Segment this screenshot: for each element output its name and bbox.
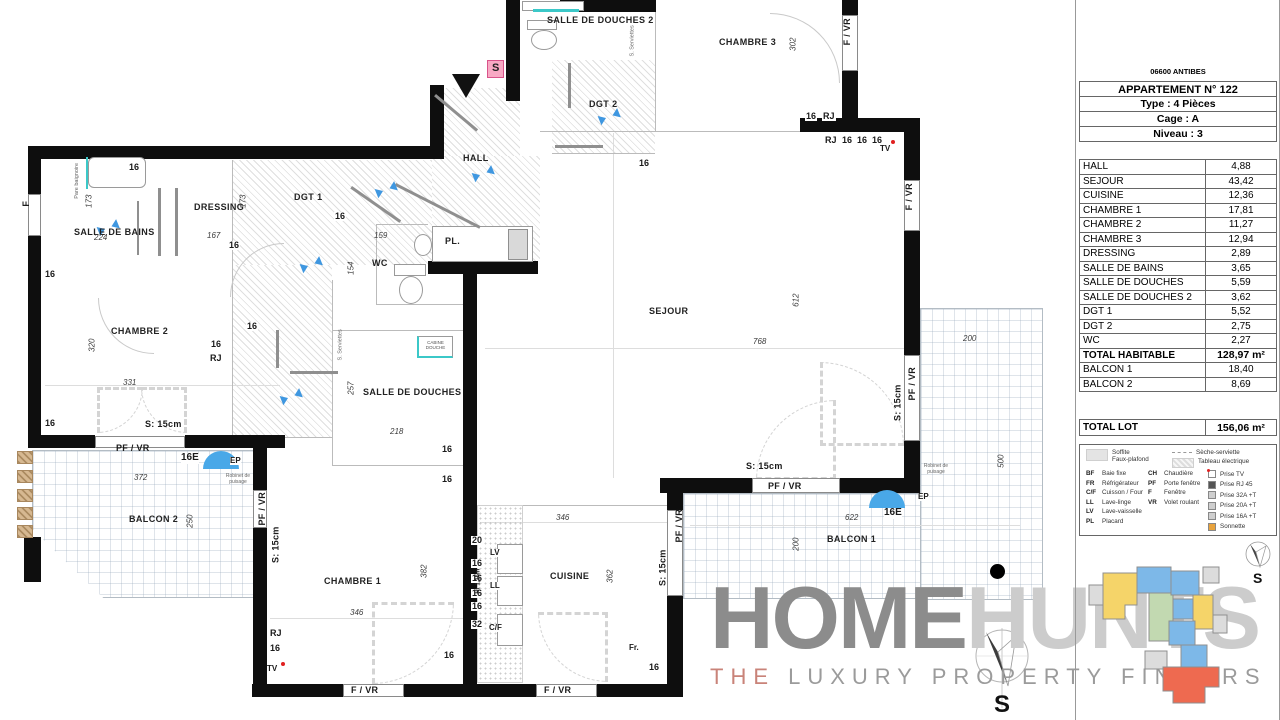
sliding-door <box>276 330 279 368</box>
window-label: PF / VR <box>675 509 684 543</box>
fixture <box>394 264 426 276</box>
outlet-marker: 16 <box>471 559 483 568</box>
annotation: S. Serviettes <box>631 25 637 56</box>
dimension: 331 <box>123 379 136 387</box>
dimension: 218 <box>390 428 403 436</box>
partition-line <box>655 0 656 131</box>
fixture <box>399 276 423 304</box>
outlet-marker: LV <box>490 549 500 557</box>
wall <box>28 236 41 448</box>
room-label: DRESSING <box>194 203 244 212</box>
outlet-marker: EP <box>918 493 929 501</box>
dimension-line <box>45 385 280 386</box>
dimension: 346 <box>350 609 363 617</box>
window-label: F / VR <box>544 686 571 695</box>
dimension: 200 <box>792 538 800 551</box>
window-label: S: 15cm <box>272 526 281 563</box>
table-row: CHAMBRE 211,27 <box>1079 217 1277 233</box>
outlet-marker: 16 <box>805 112 817 121</box>
sliding-door <box>290 371 338 374</box>
annotation: Pare baignoire <box>75 163 81 199</box>
door-swing <box>820 362 904 446</box>
outlet-marker: 16 <box>228 241 240 250</box>
table-row: DRESSING2,89 <box>1079 246 1277 262</box>
wall <box>904 132 920 180</box>
wall <box>660 478 752 493</box>
sonnette-badge: S <box>487 60 504 78</box>
outlet-marker: 16 <box>269 644 281 653</box>
sanitary-accent <box>533 9 579 12</box>
room-label: DGT 1 <box>294 193 323 202</box>
wall <box>842 71 858 120</box>
table-row: SALLE DE BAINS3,65 <box>1079 261 1277 277</box>
prise-tv-icon <box>1208 470 1216 478</box>
legend: SoffiteFaux-plafond Sèche-serviette Tabl… <box>1079 444 1277 536</box>
wall <box>28 146 41 194</box>
dimension: 173 <box>85 195 93 208</box>
dimension: 320 <box>88 339 96 352</box>
wall <box>428 261 538 274</box>
total-lot-row: TOTAL LOT156,06 m² <box>1079 419 1277 436</box>
dimension: 167 <box>207 232 220 240</box>
outlet-marker: 16E <box>884 508 902 519</box>
wall <box>28 435 95 448</box>
prise-rj45-icon <box>1208 481 1216 489</box>
key-plan-south-label: S <box>1253 570 1262 586</box>
wall <box>185 435 285 448</box>
table-row: DGT 15,52 <box>1079 304 1277 320</box>
sliding-door <box>158 188 161 256</box>
outlet-marker: 16 <box>441 445 453 454</box>
city-label: 06600 ANTIBES <box>1079 67 1277 76</box>
table-row: CHAMBRE 312,94 <box>1079 232 1277 248</box>
prise-20a-icon <box>1208 502 1216 510</box>
outlet-marker: 16 <box>334 212 346 221</box>
outlet-marker: EP <box>230 457 241 465</box>
entrance-arrow-icon <box>452 74 480 98</box>
table-row: DGT 22,75 <box>1079 319 1277 335</box>
areas-table: HALL4,88 SEJOUR43,42 CUISINE12,36 CHAMBR… <box>1079 160 1277 392</box>
outlet-marker: TV <box>267 665 277 673</box>
wall <box>800 118 920 132</box>
room-label: SALLE DE DOUCHES <box>363 388 461 397</box>
door-swing <box>770 13 840 83</box>
wall <box>252 684 343 697</box>
window-label: PF / VR <box>768 482 802 491</box>
sliding-door <box>568 63 571 108</box>
fixture <box>497 544 523 574</box>
outlet-marker: RJ <box>269 629 283 638</box>
window-label: PF / VR <box>116 444 150 453</box>
door-swing <box>538 612 608 682</box>
annotation: Robinet de puisage <box>918 464 954 475</box>
dimension: 250 <box>186 515 194 528</box>
sonnette-icon <box>1208 523 1216 531</box>
legend-col-1: BFBaie fixe FRRéfrigérateur C/FCuisson /… <box>1086 470 1148 533</box>
sliding-door <box>555 145 603 148</box>
total-habitable-row: TOTAL HABITABLE128,97 m² <box>1079 348 1277 364</box>
dimension-line <box>485 348 905 349</box>
wall <box>253 528 267 686</box>
table-row: BALCON 28,69 <box>1079 377 1277 393</box>
tableau-electrique <box>508 229 528 260</box>
window-label: S: 15cm <box>746 462 783 471</box>
dimension-line <box>613 133 614 478</box>
room-label: CUISINE <box>550 572 589 581</box>
dimension: 622 <box>845 514 858 522</box>
outlet-marker: C/F <box>489 624 502 632</box>
outlet-marker: 16 <box>841 136 853 145</box>
outlet-marker: Fr. <box>629 644 639 652</box>
fixture <box>414 234 432 256</box>
wall <box>667 596 683 697</box>
window-label: F / VR <box>905 183 914 210</box>
outlet-marker: 16 <box>443 651 455 660</box>
outlet-marker: 16 <box>246 322 258 331</box>
balcony-step <box>17 451 33 464</box>
dimension: 362 <box>606 570 614 583</box>
shower-cabin-label: CABINE DOUCHE <box>417 336 453 358</box>
room-label: PL. <box>445 237 460 246</box>
sanitary-accent <box>86 157 88 189</box>
seche-serviette-swatch <box>1172 452 1192 454</box>
dimension-line <box>690 525 1020 526</box>
outlet-marker: RJ <box>824 136 838 145</box>
table-row: SEJOUR43,42 <box>1079 174 1277 190</box>
room-label: DGT 2 <box>589 100 618 109</box>
annotation: Ht 1,15m <box>475 569 481 594</box>
room-label: WC <box>372 259 388 268</box>
table-row: BALCON 118,40 <box>1079 362 1277 378</box>
outlet-marker: 16 <box>856 136 868 145</box>
dimension: 768 <box>753 338 766 346</box>
window-label: F <box>22 201 31 207</box>
outlet-marker: 16 <box>128 163 140 172</box>
partition-line <box>376 304 466 305</box>
outlet-marker: TV <box>880 145 890 153</box>
window-label: F / VR <box>351 686 378 695</box>
tv-socket-dot <box>891 140 895 144</box>
apartment-type: Type : 4 Pièces <box>1079 96 1277 112</box>
sliding-door <box>175 188 178 256</box>
balcony-step <box>17 507 33 520</box>
window-label: PF / VR <box>258 492 267 526</box>
table-row: WC2,27 <box>1079 333 1277 349</box>
outlet-marker: 20 <box>471 536 483 545</box>
room-label: SEJOUR <box>649 307 688 316</box>
legend-soffite: Soffite <box>1112 449 1130 456</box>
dimension: 224 <box>94 234 107 242</box>
partition-line <box>376 224 428 225</box>
dimension: 257 <box>347 382 355 395</box>
outlet-marker: 32 <box>471 620 483 629</box>
annotation: Robinet de puisage <box>220 474 256 485</box>
window-label: S: 15cm <box>145 420 182 429</box>
dimension: 173 <box>239 195 247 208</box>
partition-line <box>332 330 466 331</box>
apartment-cage: Cage : A <box>1079 111 1277 127</box>
legend-seche: Sèche-serviette <box>1196 449 1240 456</box>
balcony-tiles <box>920 308 1043 600</box>
table-row: SALLE DE DOUCHES5,59 <box>1079 275 1277 291</box>
dimension: 612 <box>792 294 800 307</box>
fixture <box>531 30 557 50</box>
balcony-step <box>17 470 33 483</box>
outlet-marker: 16 <box>648 663 660 672</box>
outlet-marker: LL <box>490 582 500 590</box>
room-label: HALL <box>463 154 489 163</box>
outlet-marker: 16 <box>210 340 222 349</box>
key-plan <box>1085 555 1245 705</box>
fixture <box>497 576 523 606</box>
outlet-marker: 16E <box>181 453 199 464</box>
annotation: S. Serviettes <box>339 329 345 360</box>
outlet-marker: 16 <box>638 159 650 168</box>
partition-line <box>332 465 466 466</box>
wall <box>404 684 536 697</box>
panel-left-border <box>1075 0 1076 720</box>
wall <box>904 231 920 355</box>
dimension: 200 <box>963 335 976 343</box>
tableau-electrique-swatch <box>1172 458 1194 468</box>
table-row: CHAMBRE 117,81 <box>1079 203 1277 219</box>
door-swing <box>97 387 143 433</box>
outlet-marker: 16 <box>44 270 56 279</box>
logo-home: HOME <box>710 568 966 667</box>
room-label: CHAMBRE 3 <box>719 38 776 47</box>
dimension: 346 <box>556 514 569 522</box>
outlet-marker: RJ <box>209 354 223 363</box>
room-label: SALLE DE BAINS <box>74 228 155 237</box>
dimension: 154 <box>347 262 355 275</box>
prise-16a-icon <box>1208 512 1216 520</box>
outlet-marker: 16 <box>44 419 56 428</box>
window-label: S: 15cm <box>894 384 903 421</box>
room-label: BALCON 1 <box>827 535 876 544</box>
dimension: 302 <box>789 38 797 51</box>
dimension: 500 <box>997 455 1005 468</box>
info-panel: 06600 ANTIBES APPARTEMENT N° 122 Type : … <box>1075 0 1280 720</box>
room-label: SALLE DE DOUCHES 2 <box>547 16 654 25</box>
table-row: SALLE DE DOUCHES 23,62 <box>1079 290 1277 306</box>
dimension: 382 <box>420 565 428 578</box>
outlet-marker: 16 <box>441 475 453 484</box>
window-label: PF / VR <box>908 367 917 401</box>
balcony-step <box>17 489 33 502</box>
partition-line <box>540 131 801 132</box>
apartment-level: Niveau : 3 <box>1079 126 1277 142</box>
wall <box>842 0 858 15</box>
floorplan-sheet: SSALLE DE BAINSDRESSINGCHAMBRE 2SALLE DE… <box>0 0 1280 720</box>
outlet-marker: 16 <box>471 602 483 611</box>
wall <box>24 537 41 582</box>
key-plan-compass-icon: S <box>1240 540 1278 588</box>
soffite-swatch <box>1086 449 1108 461</box>
window-label: F / VR <box>843 18 852 45</box>
wall <box>667 493 683 510</box>
room-label: CHAMBRE 1 <box>324 577 381 586</box>
balcony-step <box>17 525 33 538</box>
room-label: CHAMBRE 2 <box>111 327 168 336</box>
legend-col-2: CHChaudière PFPorte fenêtre FFenêtre VRV… <box>1148 470 1208 533</box>
tv-socket-dot <box>281 662 285 666</box>
table-row: HALL4,88 <box>1079 159 1277 175</box>
wall <box>28 146 432 159</box>
outlet-marker: RJ <box>822 112 836 121</box>
table-row: CUISINE12,36 <box>1079 188 1277 204</box>
compass-south-label: S <box>994 691 1010 716</box>
dimension: 372 <box>134 474 147 482</box>
partition-line <box>552 153 655 154</box>
tagline-the: THE <box>710 664 788 689</box>
window-label: S: 15cm <box>659 549 668 586</box>
dimension: 159 <box>374 232 387 240</box>
legend-tableau: Tableau électrique <box>1198 458 1249 468</box>
wall <box>506 0 520 101</box>
prise-32a-icon <box>1208 491 1216 499</box>
room-label: BALCON 2 <box>129 515 178 524</box>
legend-col-3: Prise TV Prise RJ 45 Prise 32A +T Prise … <box>1208 470 1256 533</box>
legend-fauxplafond: Faux-plafond <box>1112 456 1149 463</box>
door-swing <box>372 602 454 684</box>
